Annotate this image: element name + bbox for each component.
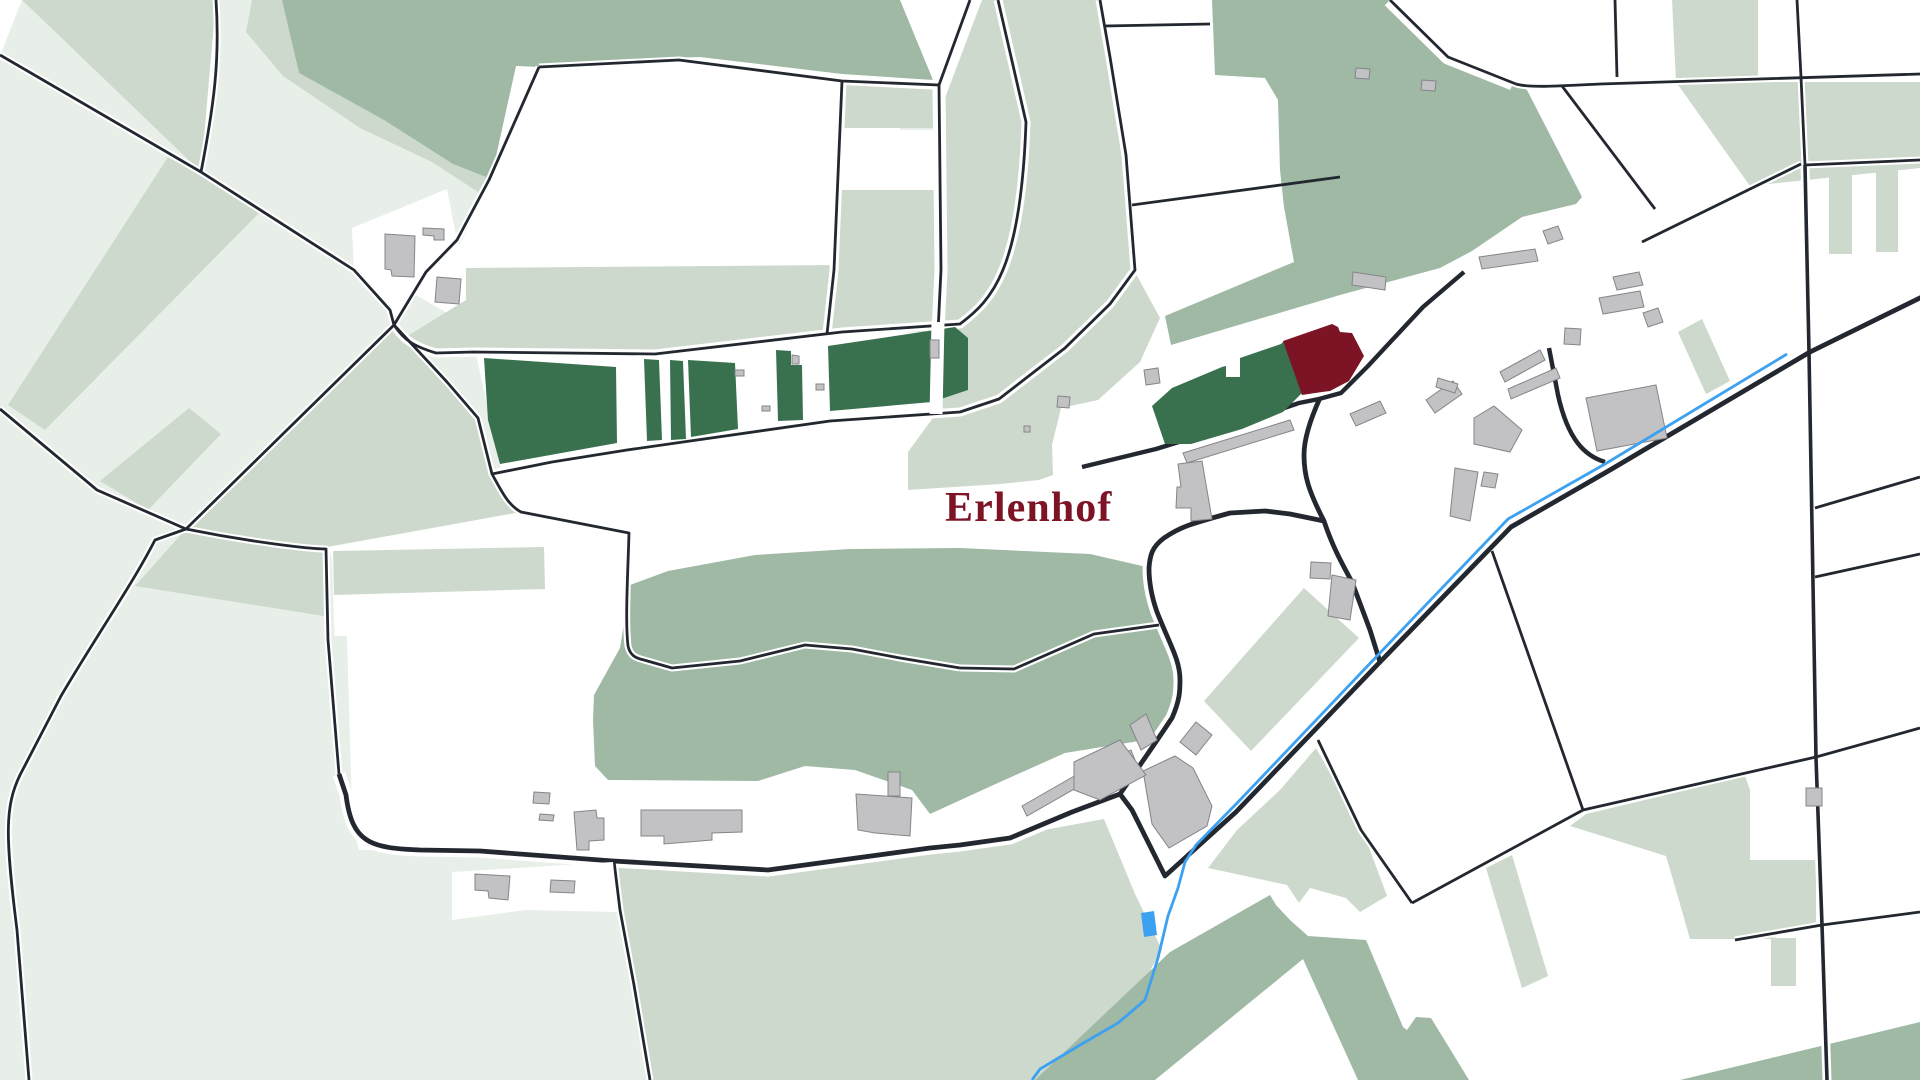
svg-text:Erlenhof: Erlenhof xyxy=(945,485,1112,531)
